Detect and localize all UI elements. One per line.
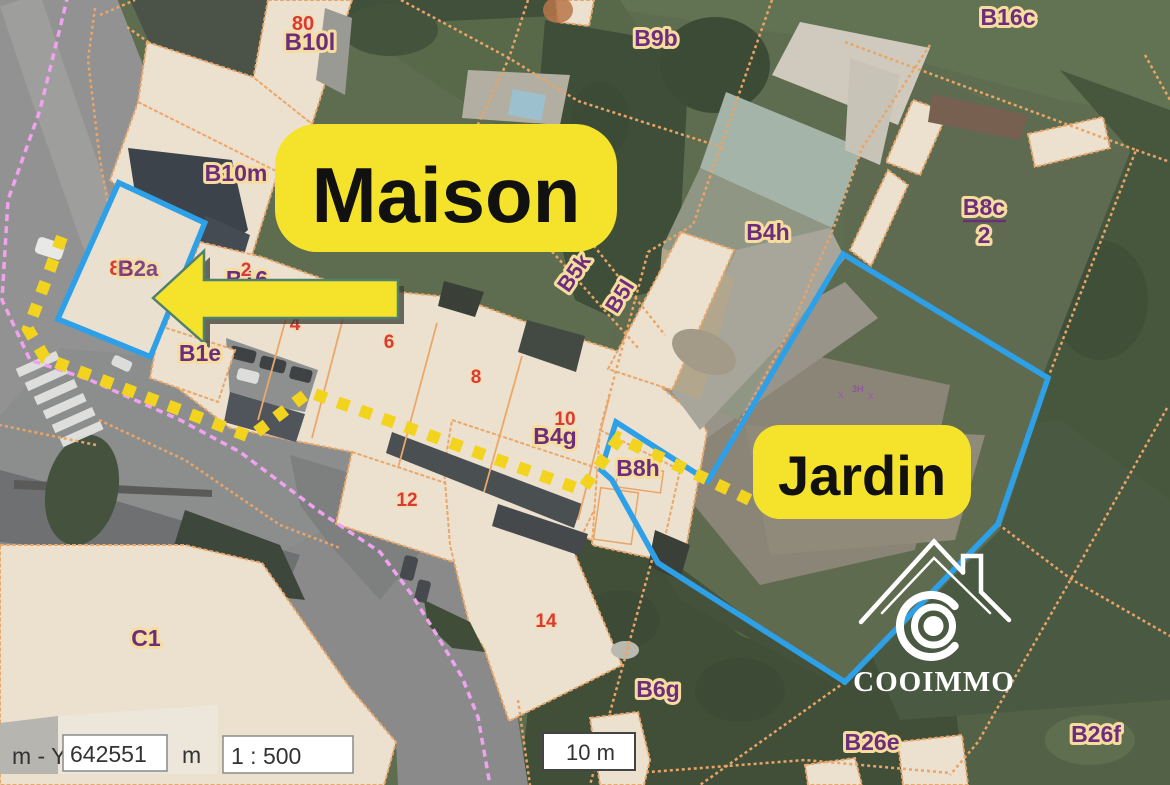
svg-text:B26f: B26f <box>1071 721 1121 747</box>
svg-text:m: m <box>182 742 201 768</box>
svg-text:2: 2 <box>241 260 252 281</box>
svg-text:B4h: B4h <box>746 219 789 245</box>
svg-text:3H: 3H <box>852 384 864 394</box>
svg-text:B10m: B10m <box>205 160 268 186</box>
svg-text:8: 8 <box>471 367 482 388</box>
svg-text:B10l: B10l <box>285 29 336 56</box>
svg-text:6: 6 <box>384 332 395 353</box>
svg-text:m - Y: m - Y <box>12 743 67 769</box>
svg-text:B16c: B16c <box>981 4 1036 30</box>
svg-text:12: 12 <box>396 490 417 511</box>
svg-text:COOIMMO: COOIMMO <box>853 666 1015 698</box>
svg-text:B4g: B4g <box>533 423 576 449</box>
svg-text:10 m: 10 m <box>566 740 615 765</box>
svg-text:C1: C1 <box>131 625 161 651</box>
svg-text:B8h: B8h <box>616 455 659 481</box>
svg-text:B9b: B9b <box>634 25 677 51</box>
svg-text:B2a: B2a <box>118 256 159 281</box>
svg-text:642551: 642551 <box>70 741 147 767</box>
svg-text:Maison: Maison <box>312 151 581 239</box>
svg-text:B1e: B1e <box>179 340 221 366</box>
svg-text:2: 2 <box>978 222 991 248</box>
svg-text:B8c: B8c <box>963 194 1005 220</box>
svg-text:Jardin: Jardin <box>778 444 946 507</box>
svg-text:14: 14 <box>535 611 557 632</box>
svg-text:x: x <box>868 390 874 402</box>
svg-text:B6g: B6g <box>636 676 679 702</box>
svg-text:1 : 500: 1 : 500 <box>231 743 301 769</box>
svg-text:B26e: B26e <box>845 729 900 755</box>
svg-text:x: x <box>838 389 844 401</box>
